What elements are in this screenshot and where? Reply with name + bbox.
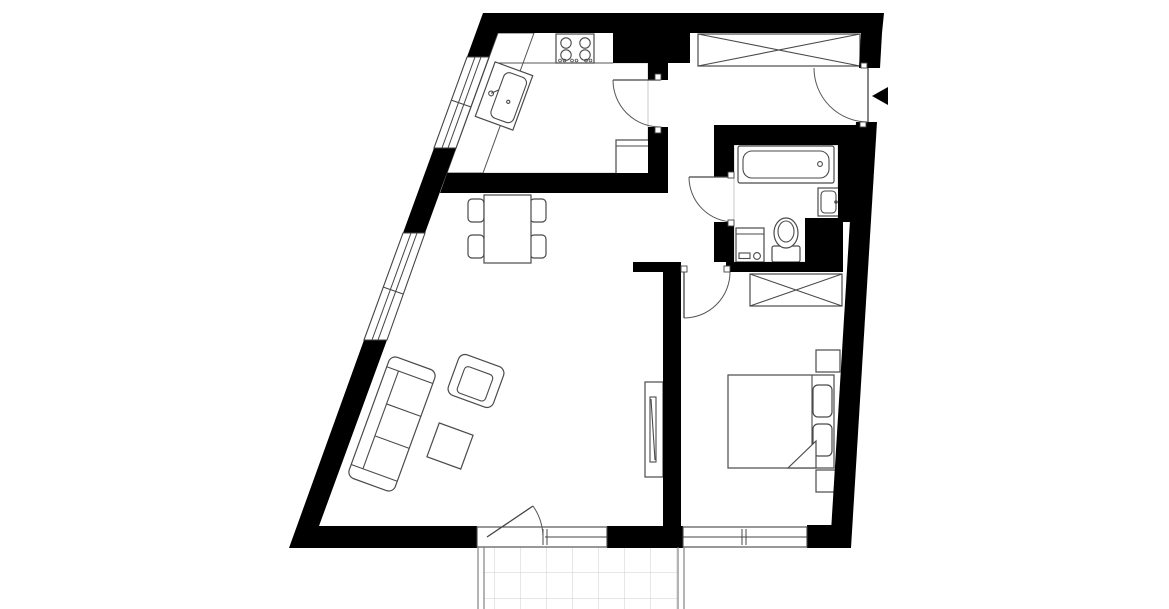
armchair-icon [446, 353, 506, 410]
bathtub-icon [738, 146, 834, 183]
floor-plan-page [0, 0, 1169, 609]
living-room-window [364, 233, 425, 340]
refrigerator-icon [616, 140, 650, 176]
kitchen-hall-wall-chunk [613, 33, 690, 63]
bathroom-door [689, 172, 734, 226]
coffee-table-icon [427, 423, 473, 469]
bottom-wall-middle [607, 526, 683, 548]
bathroom-left-wall-lower [714, 222, 734, 262]
bedroom-door [681, 266, 730, 318]
cooktop-icon [556, 34, 594, 63]
kitchen-living-wall [440, 173, 668, 193]
double-bed-icon [728, 375, 834, 468]
floor-plan [0, 0, 1169, 609]
kitchen-door [613, 74, 661, 133]
bottom-wall-se-corner [807, 525, 851, 548]
hall-wardrobe-icon [698, 34, 860, 66]
bathroom-top-wall [714, 125, 858, 145]
entrance-door [814, 63, 868, 127]
bathroom-corner-wall-chunk [805, 218, 843, 272]
top-wall [483, 13, 884, 33]
washing-machine-icon [736, 228, 764, 262]
toilet-icon [772, 218, 800, 262]
balcony-floor-tiles [484, 547, 678, 609]
bathroom-right-wall [838, 128, 859, 222]
tv-cabinet-icon [645, 382, 663, 477]
washbasin-icon [818, 188, 840, 216]
entrance-marker-icon [872, 87, 888, 105]
bedroom-window [683, 527, 807, 547]
bathroom-bottom-wall [726, 262, 807, 272]
living-bedroom-wall [663, 262, 681, 529]
bedroom-wardrobe-icon [750, 274, 842, 306]
dining-table-icon [484, 195, 531, 263]
